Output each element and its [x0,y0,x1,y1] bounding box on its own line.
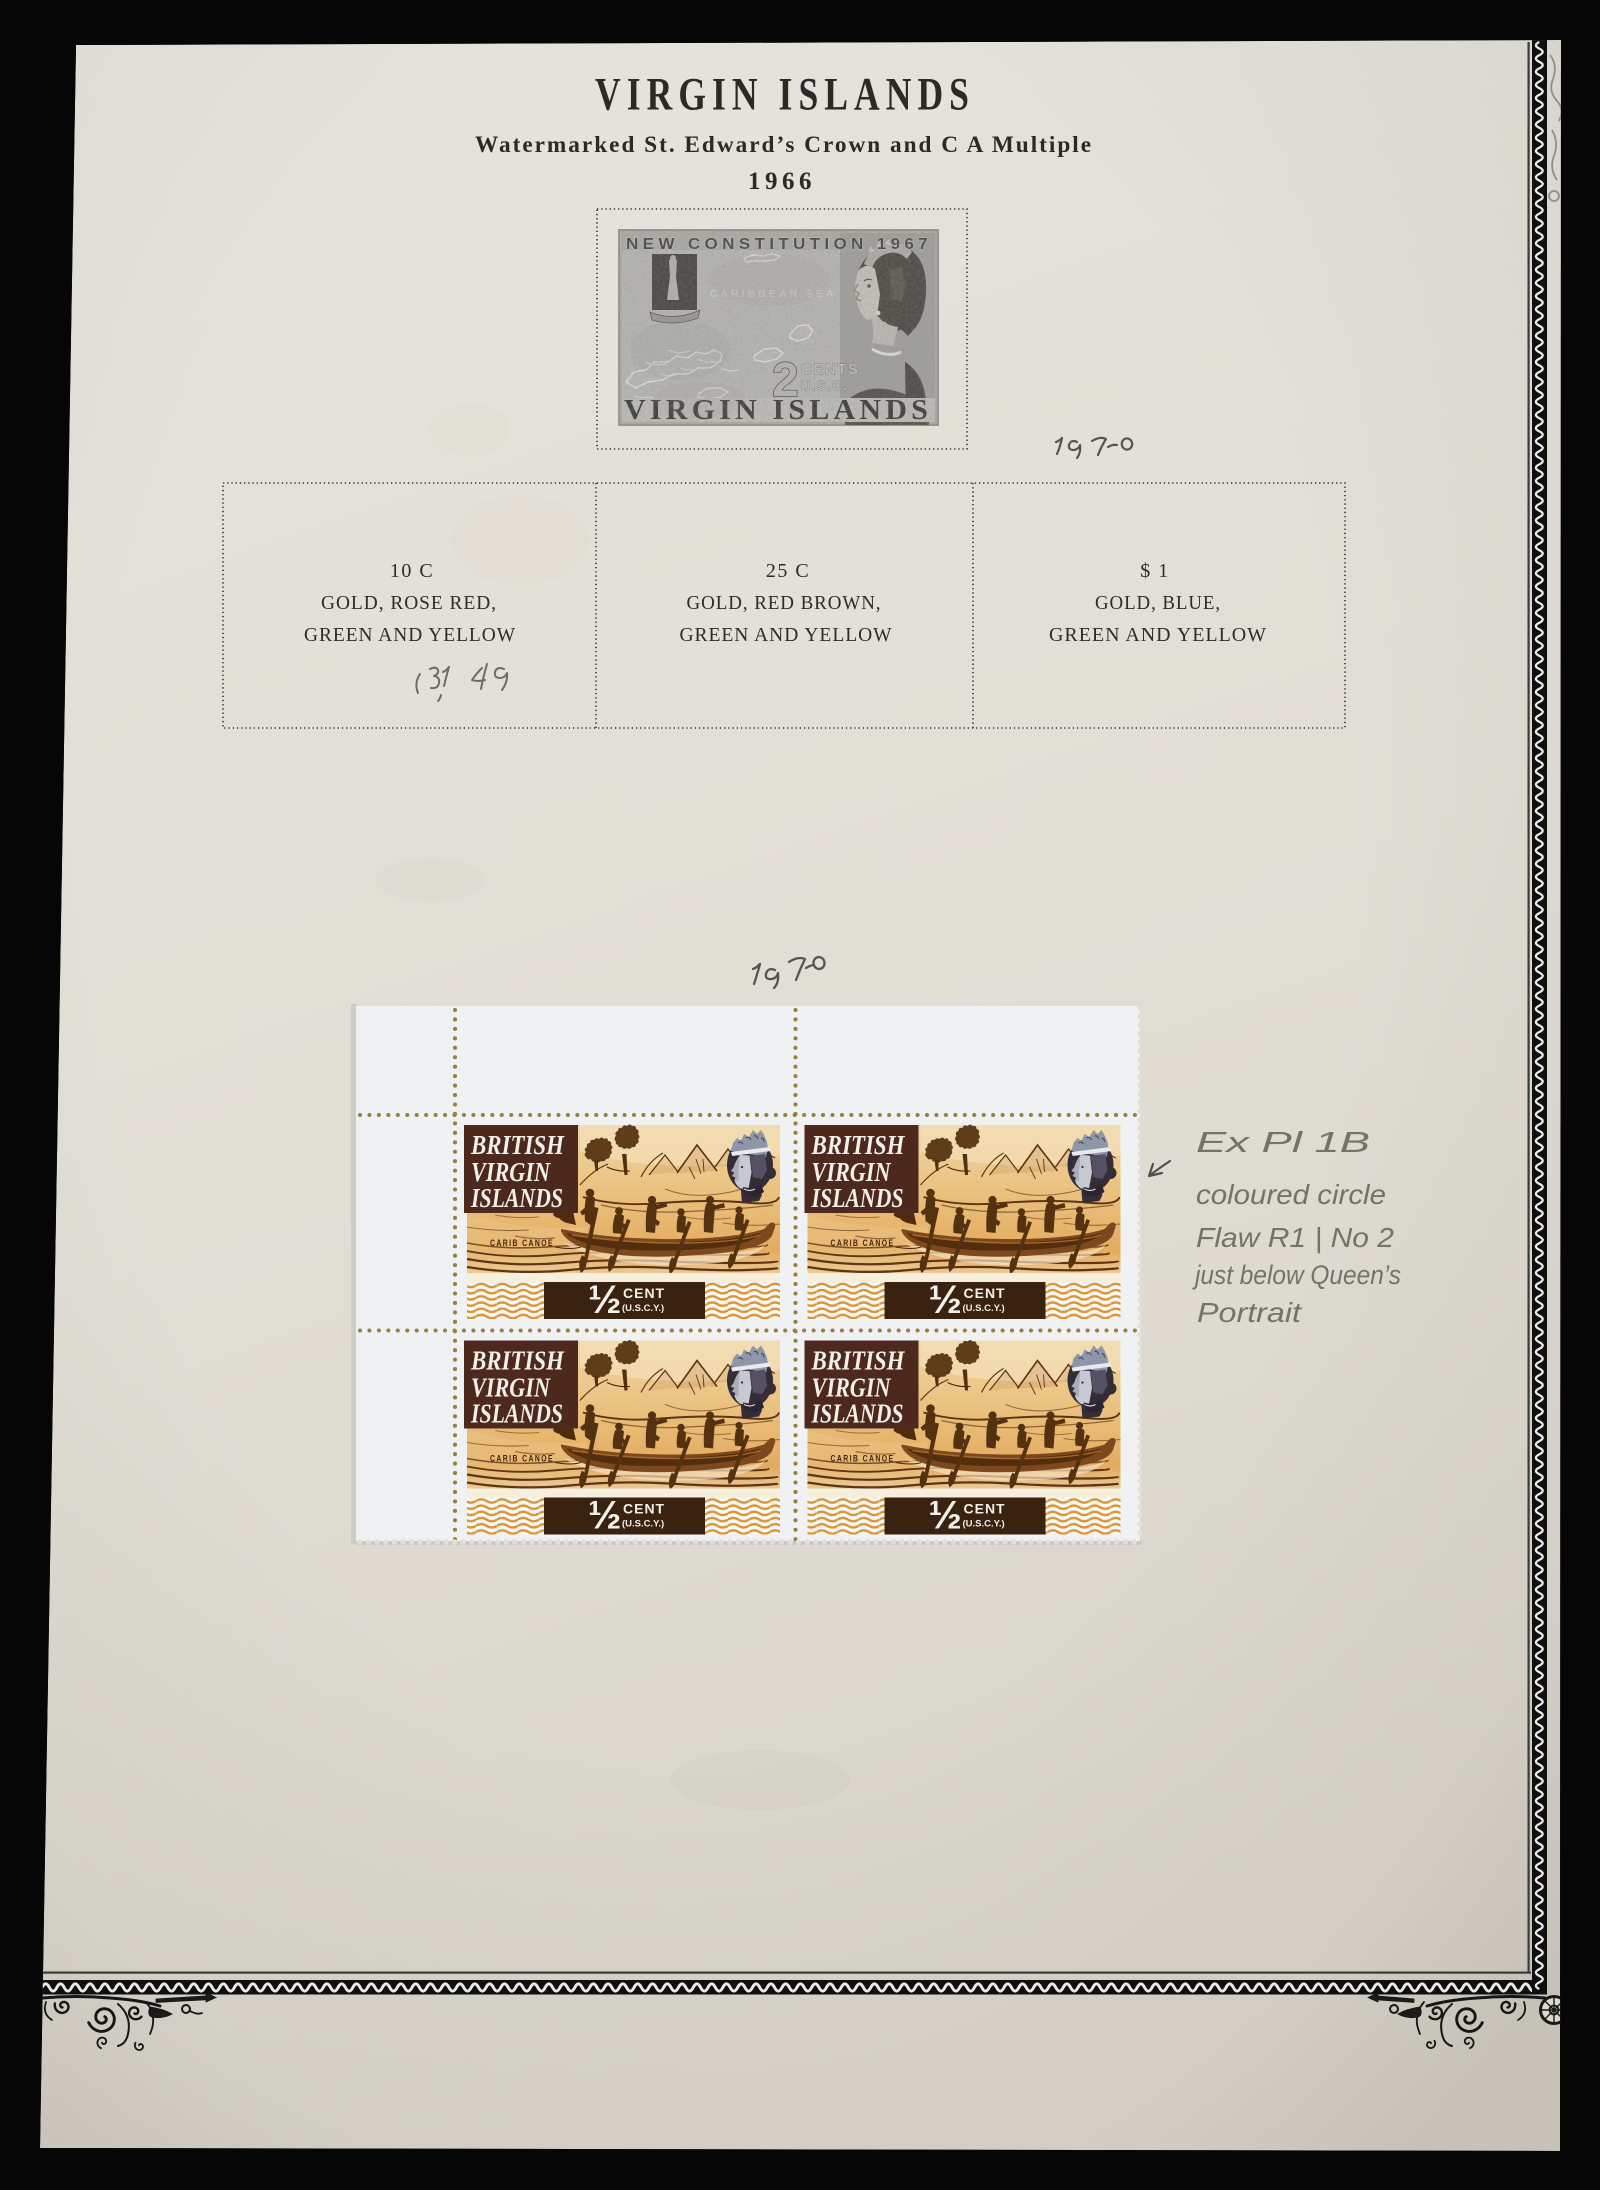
svg-text:GOLD, ROSE RED,: GOLD, ROSE RED, [321,592,497,614]
svg-text:GREEN AND YELLOW: GREEN AND YELLOW [1049,624,1267,646]
svg-text:Ex Pl 1B: Ex Pl 1B [1196,1127,1370,1159]
svg-text:$ 1: $ 1 [1140,560,1170,582]
svg-text:1966: 1966 [748,168,816,195]
svg-text:just below Queen’s: just below Queen’s [1191,1260,1401,1290]
svg-text:Watermarked St. Edward’s Crown: Watermarked St. Edward’s Crown and C A M… [475,132,1093,158]
svg-text:GOLD, RED BROWN,: GOLD, RED BROWN, [687,592,882,614]
svg-text:25 C: 25 C [766,560,810,582]
svg-text:GOLD, BLUE,: GOLD, BLUE, [1095,592,1221,614]
svg-text:coloured circle: coloured circle [1196,1179,1386,1210]
svg-text:10 C: 10 C [390,560,434,582]
svg-text:Portrait: Portrait [1197,1297,1302,1328]
svg-text:VIRGIN ISLANDS: VIRGIN ISLANDS [595,69,975,121]
svg-text:GREEN AND YELLOW: GREEN AND YELLOW [304,624,516,646]
svg-text:Flaw R1 | No 2: Flaw R1 | No 2 [1196,1222,1394,1253]
svg-text:GREEN AND YELLOW: GREEN AND YELLOW [680,624,893,646]
